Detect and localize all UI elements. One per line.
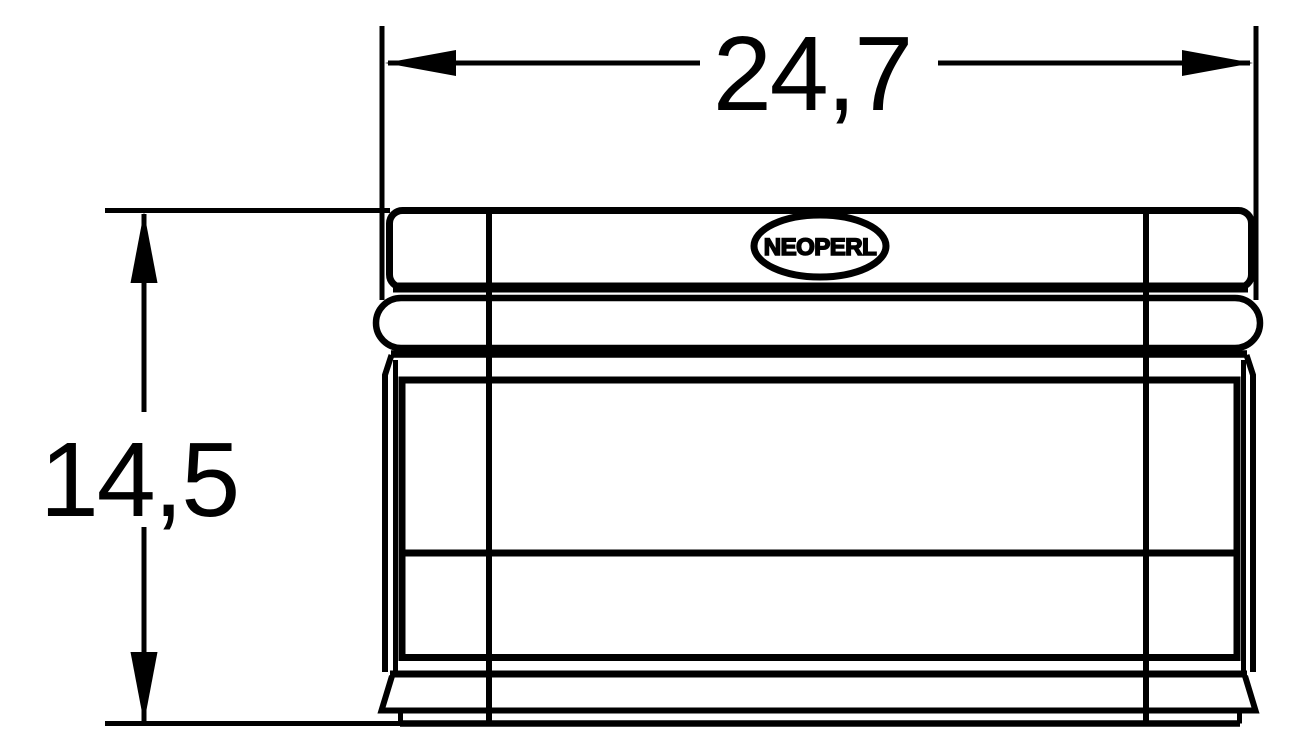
width-dimension-label: 24,7 (713, 15, 911, 133)
logo-text: NEOPERL (764, 234, 877, 261)
technical-drawing-canvas: 24,7 14,5 (0, 0, 1312, 756)
body-right-outer-edge (1247, 355, 1254, 672)
body-inner-panel (402, 380, 1237, 658)
aerator-dimension-drawing: 24,7 14,5 (0, 0, 1312, 756)
arrow-down-icon (131, 652, 158, 723)
skirt-outline (382, 676, 1256, 711)
brand-logo: NEOPERL (754, 215, 886, 277)
height-dimension-label: 14,5 (40, 421, 238, 539)
arrow-right-icon (1182, 50, 1253, 76)
arrow-up-icon (131, 212, 158, 283)
body-left-outer-edge (385, 355, 392, 672)
arrow-left-icon (385, 50, 456, 76)
oring-band (376, 298, 1260, 348)
part-front-view (376, 211, 1260, 724)
height-dimension: 14,5 (40, 211, 402, 724)
